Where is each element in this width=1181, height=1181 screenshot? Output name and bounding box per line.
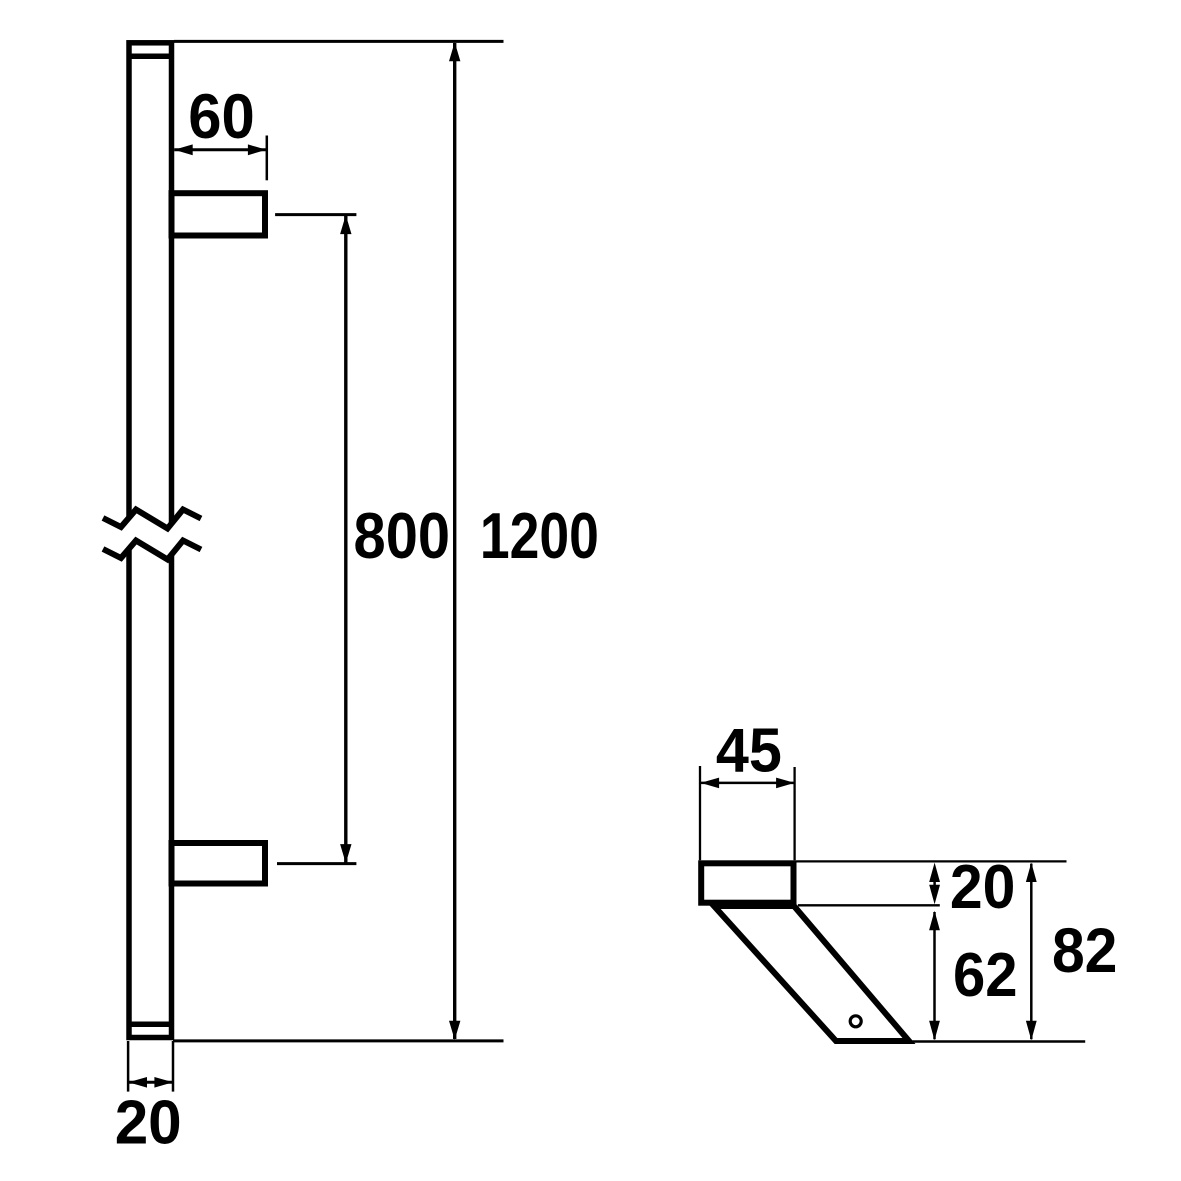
svg-text:60: 60 <box>188 82 255 152</box>
svg-text:62: 62 <box>953 941 1018 1010</box>
svg-text:800: 800 <box>354 499 451 572</box>
svg-text:82: 82 <box>1052 916 1118 986</box>
svg-text:20: 20 <box>115 1088 182 1157</box>
svg-text:20: 20 <box>950 853 1016 922</box>
svg-text:1200: 1200 <box>480 499 599 572</box>
svg-text:45: 45 <box>716 716 782 786</box>
